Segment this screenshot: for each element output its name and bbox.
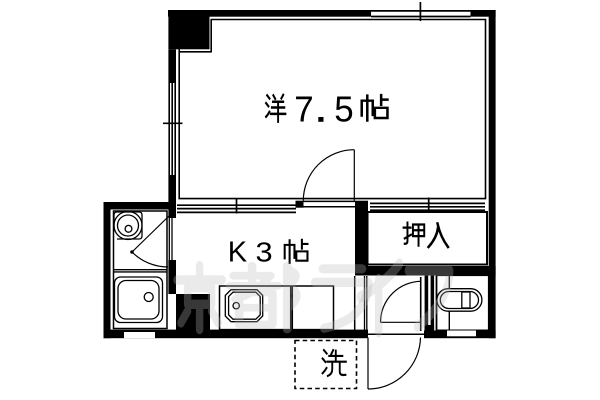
svg-text:3: 3: [256, 237, 273, 268]
svg-text:5: 5: [334, 89, 353, 130]
svg-text:K: K: [228, 237, 248, 269]
svg-text:7: 7: [294, 89, 313, 130]
